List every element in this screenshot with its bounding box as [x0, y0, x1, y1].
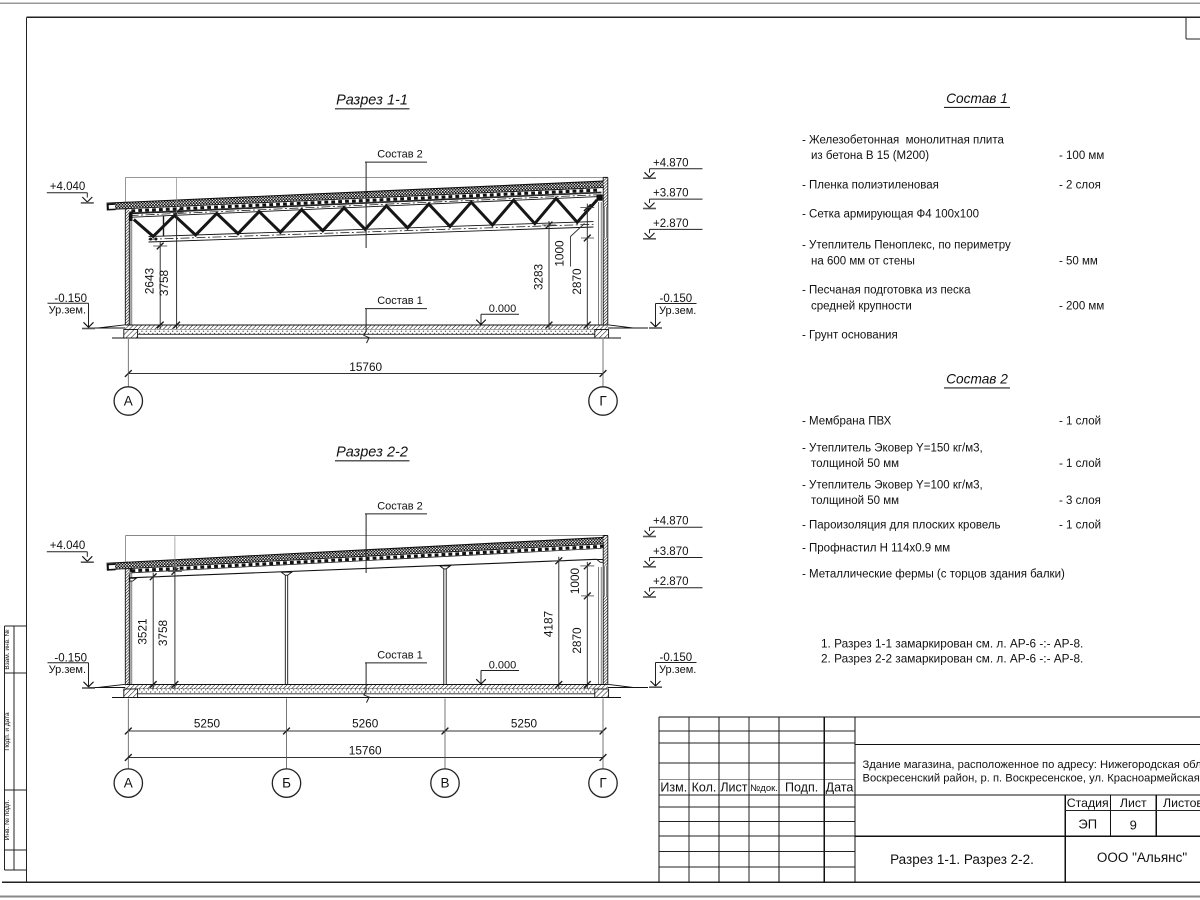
svg-text:1. Разрез 1-1 замаркирован см.: 1. Разрез 1-1 замаркирован см. л. АР-6 -…: [821, 636, 1083, 650]
svg-text:0.000: 0.000: [489, 659, 517, 671]
svg-text:Состав 2: Состав 2: [377, 149, 423, 161]
svg-text:ЭП: ЭП: [1078, 817, 1097, 832]
svg-text:Взам. инв. №: Взам. инв. №: [4, 629, 11, 669]
svg-text:- Сетка армирующая Ф4 100х100: - Сетка армирующая Ф4 100х100: [802, 209, 979, 221]
svg-text:- Пароизоляция для плоских кро: - Пароизоляция для плоских кровель: [802, 519, 1001, 531]
svg-text:3521: 3521: [135, 618, 149, 644]
svg-text:- Песчаная подготовка из песка: - Песчаная подготовка из песка: [802, 285, 971, 297]
svg-text:- Грунт основания: - Грунт основания: [802, 330, 898, 342]
svg-text:- Железобетонная монолитная п: - Железобетонная монолитная плита: [802, 134, 1004, 146]
svg-text:Инв. № подл.: Инв. № подл.: [4, 800, 11, 841]
svg-text:ООО "Альянс": ООО "Альянс": [1097, 850, 1187, 865]
svg-text:- 200 мм: - 200 мм: [1059, 300, 1104, 312]
svg-text:- 50 мм: - 50 мм: [1059, 255, 1098, 267]
svg-text:- Мембрана ПВХ: - Мембрана ПВХ: [802, 415, 892, 427]
svg-text:- 1 слой: - 1 слой: [1059, 415, 1101, 427]
svg-text:- Профнастил Н 114х0.9 мм: - Профнастил Н 114х0.9 мм: [802, 542, 950, 554]
svg-text:15760: 15760: [349, 360, 382, 374]
svg-text:из бетона В 15 (М200): из бетона В 15 (М200): [811, 150, 929, 162]
svg-text:Ур.зем.: Ур.зем.: [49, 305, 86, 317]
svg-text:+2.870: +2.870: [653, 218, 689, 230]
svg-text:Ур.зем.: Ур.зем.: [659, 305, 696, 317]
svg-text:5250: 5250: [194, 717, 221, 731]
svg-text:Воскресенский район, р. п. Вос: Воскресенский район, р. п. Воскресенское…: [863, 773, 1200, 785]
svg-text:1000: 1000: [553, 240, 567, 267]
svg-text:5260: 5260: [352, 717, 379, 731]
svg-text:Лист: Лист: [720, 780, 747, 794]
svg-text:4187: 4187: [541, 611, 555, 637]
svg-text:Подп. и дата: Подп. и дата: [4, 712, 11, 751]
svg-text:Состав 1: Состав 1: [377, 649, 423, 661]
svg-text:2870: 2870: [570, 627, 584, 654]
svg-text:№док.: №док.: [750, 783, 778, 794]
svg-text:Состав 1: Состав 1: [377, 295, 423, 307]
svg-text:- Утеплитель Эковер Y=100 кг/м: - Утеплитель Эковер Y=100 кг/м3,: [802, 479, 983, 491]
svg-text:Подп.: Подп.: [785, 780, 818, 794]
svg-text:Б: Б: [282, 776, 291, 791]
svg-text:- Утеплитель Пеноплекс, по пер: - Утеплитель Пеноплекс, по периметру: [802, 240, 1011, 252]
svg-text:+3.870: +3.870: [653, 546, 689, 558]
svg-text:3758: 3758: [156, 619, 170, 646]
svg-text:Стадия: Стадия: [1067, 796, 1109, 810]
svg-text:Г: Г: [599, 394, 607, 409]
svg-text:А: А: [124, 394, 133, 409]
svg-text:- 1 слой: - 1 слой: [1059, 519, 1101, 531]
svg-text:толщиной 50 мм: толщиной 50 мм: [811, 458, 899, 470]
svg-text:Разрез 1-1: Разрез 1-1: [336, 93, 408, 109]
svg-text:на 600 мм от стены: на 600 мм от стены: [811, 255, 915, 267]
svg-text:+3.870: +3.870: [653, 188, 689, 200]
svg-text:1000: 1000: [568, 567, 582, 594]
svg-text:Здание магазина, расположенное: Здание магазина, расположенное по адресу…: [863, 759, 1200, 771]
svg-text:Разрез 1-1. Разрез 2-2.: Разрез 1-1. Разрез 2-2.: [890, 852, 1034, 867]
svg-text:толщиной 50 мм: толщиной 50 мм: [811, 495, 899, 507]
svg-text:Изм.: Изм.: [660, 780, 687, 794]
svg-text:Состав 2: Состав 2: [377, 500, 423, 512]
svg-text:2643: 2643: [142, 267, 156, 294]
svg-text:В: В: [440, 776, 449, 791]
svg-text:Состав 1: Состав 1: [946, 91, 1008, 106]
svg-text:А: А: [124, 776, 133, 791]
svg-text:+2.870: +2.870: [653, 576, 689, 588]
svg-text:Разрез 2-2: Разрез 2-2: [336, 445, 408, 461]
svg-text:Кол.: Кол.: [692, 780, 717, 794]
svg-text:3758: 3758: [157, 269, 171, 296]
svg-text:9: 9: [1130, 818, 1137, 833]
svg-text:3283: 3283: [532, 263, 546, 290]
svg-text:5250: 5250: [511, 717, 538, 731]
svg-text:Ур.зем.: Ур.зем.: [659, 664, 696, 676]
svg-text:2870: 2870: [570, 268, 584, 295]
svg-text:+4.040: +4.040: [50, 540, 86, 552]
svg-text:+4.040: +4.040: [50, 181, 86, 193]
svg-text:- 1 слой: - 1 слой: [1059, 458, 1101, 470]
svg-text:Г: Г: [599, 776, 607, 791]
svg-text:- 3 слоя: - 3 слоя: [1059, 495, 1101, 507]
svg-text:+4.870: +4.870: [653, 157, 689, 169]
svg-text:Листов: Листов: [1163, 796, 1200, 810]
svg-text:Ур.зем.: Ур.зем.: [49, 664, 86, 676]
svg-text:0.000: 0.000: [489, 303, 517, 315]
svg-text:средней крупности: средней крупности: [811, 300, 912, 312]
svg-text:15760: 15760: [349, 744, 382, 758]
svg-text:2. Разрез 2-2 замаркирован см.: 2. Разрез 2-2 замаркирован см. л. АР-6 -…: [821, 652, 1083, 666]
svg-text:- Утеплитель Эковер Y=150 кг/м: - Утеплитель Эковер Y=150 кг/м3,: [802, 442, 983, 454]
svg-text:- Металлические фермы (с торцо: - Металлические фермы (с торцов здания б…: [802, 568, 1065, 580]
svg-text:Лист: Лист: [1120, 796, 1147, 810]
svg-text:Состав 2: Состав 2: [946, 372, 1008, 387]
svg-text:Дата: Дата: [826, 780, 854, 794]
svg-text:+4.870: +4.870: [653, 516, 689, 528]
svg-text:- Пленка полиэтиленовая: - Пленка полиэтиленовая: [802, 180, 939, 192]
svg-text:- 2 слоя: - 2 слоя: [1059, 180, 1101, 192]
svg-text:- 100 мм: - 100 мм: [1059, 150, 1104, 162]
